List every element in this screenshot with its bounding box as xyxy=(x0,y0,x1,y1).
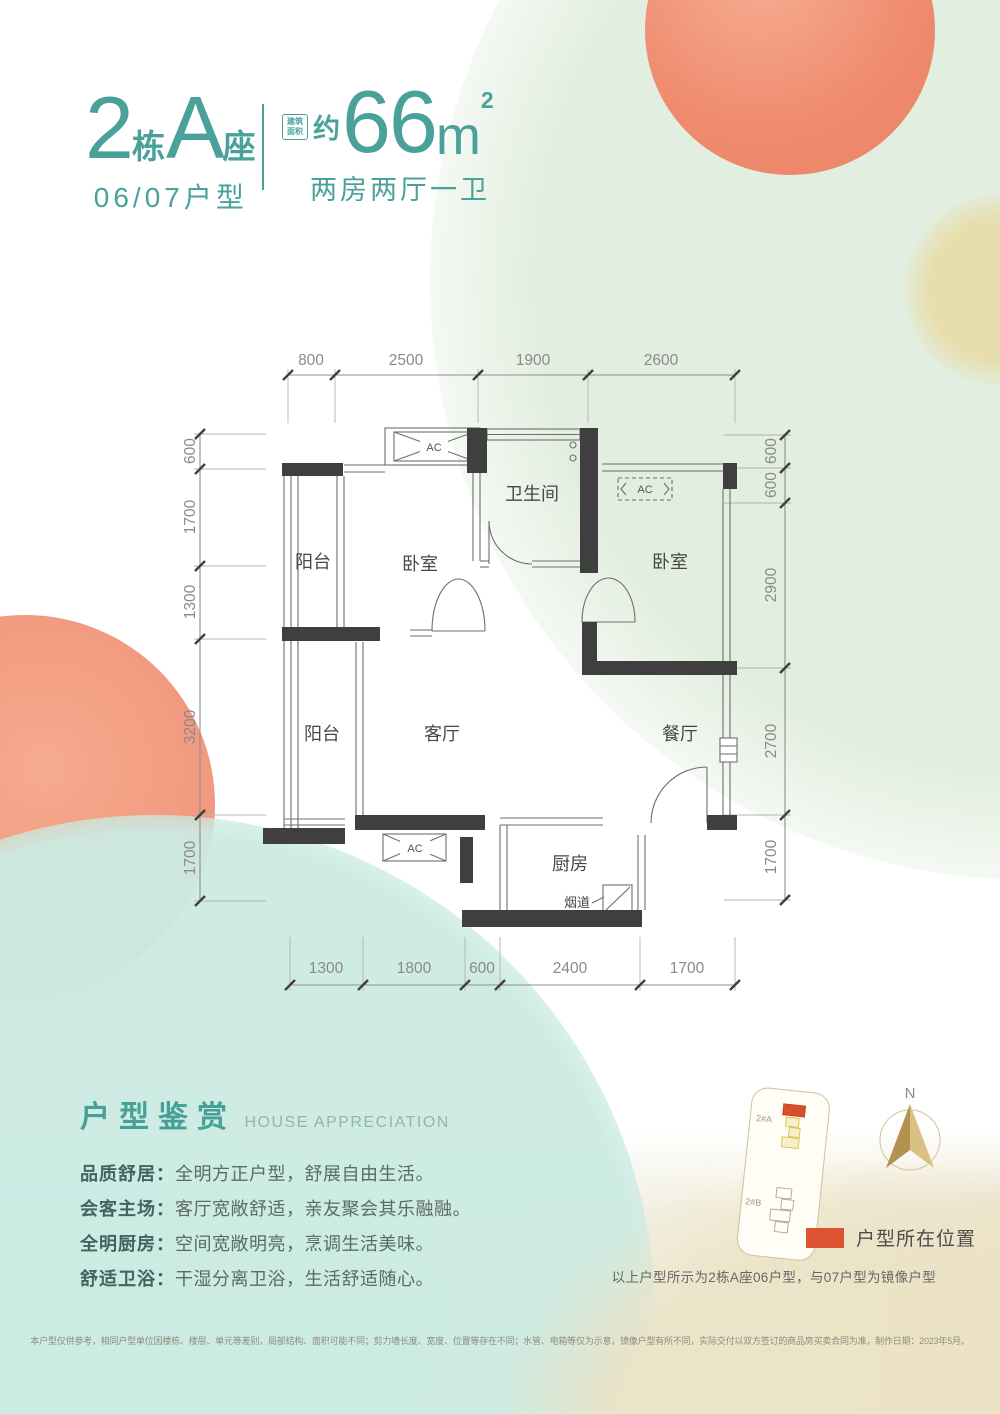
dim-bottom-5: 1700 xyxy=(670,960,705,977)
dim-bottom-4: 2400 xyxy=(553,960,588,977)
room-label-bedroom-left: 卧室 xyxy=(402,554,438,574)
dim-top-2: 2500 xyxy=(389,352,424,369)
dim-left-2: 1700 xyxy=(182,499,199,534)
dim-top-1: 800 xyxy=(298,352,324,369)
poster-page: 2栋A座 06/07户型 建筑面积 约 66 m 2 两房两厅一卫 xyxy=(0,0,1000,1414)
dim-right-3: 2900 xyxy=(763,567,780,602)
appreciation-point: 舒适卫浴：干湿分离卫浴，生活舒适随心。 xyxy=(80,1265,471,1300)
mirror-caption: 以上户型所示为2栋A座06户型，与07户型为镜像户型 xyxy=(500,1266,936,1286)
appreciation-title-cn: 户型鉴赏 xyxy=(80,1101,236,1134)
room-label-flue: 烟道 xyxy=(564,895,590,910)
appreciation-point: 全明厨房：空间宽敞明亮，烹调生活美味。 xyxy=(80,1230,471,1265)
legend-swatch-icon xyxy=(806,1228,844,1248)
dim-top-3: 1900 xyxy=(516,352,551,369)
room-label-balcony-mid: 阳台 xyxy=(304,724,340,744)
area-approx: 约 xyxy=(313,107,340,146)
dim-top-4: 2600 xyxy=(644,352,679,369)
dim-left-1: 600 xyxy=(182,438,199,464)
legend-label: 户型所在位置 xyxy=(856,1224,976,1251)
ac-label-top: AC xyxy=(426,442,441,454)
appreciation-title: 户型鉴赏 HOUSE APPRECIATION xyxy=(80,1092,450,1136)
dim-right-4: 2700 xyxy=(763,723,780,758)
area-title: 建筑面积 约 66 m 2 两房两厅一卫 xyxy=(282,86,494,207)
appreciation-points: 品质舒居：全明方正户型，舒展自由生活。 会客主场：客厅宽敞舒适，亲友聚会其乐融融… xyxy=(80,1160,471,1300)
floor-plan: 800 2500 1900 2600 600 1700 1300 3200 17… xyxy=(180,325,820,1005)
ac-label-bottom: AC xyxy=(407,843,422,855)
building-a-label: 2#A xyxy=(756,1113,773,1125)
dim-right-5: 1700 xyxy=(763,839,780,874)
block-letter: A xyxy=(166,78,223,177)
room-label-dining: 餐厅 xyxy=(662,724,698,744)
room-label-balcony-top: 阳台 xyxy=(295,552,331,572)
area-unit: m xyxy=(436,115,481,158)
dim-bottom-3: 600 xyxy=(469,960,495,977)
appreciation-point: 品质舒居：全明方正户型，舒展自由生活。 xyxy=(80,1160,471,1195)
building-number-suffix: 栋 xyxy=(132,128,166,165)
north-label: N xyxy=(905,1085,916,1102)
dim-left-5: 1700 xyxy=(182,840,199,875)
dim-bottom-2: 1800 xyxy=(397,960,432,977)
unit-types: 06/07户型 xyxy=(85,176,257,216)
appreciation-title-en: HOUSE APPRECIATION xyxy=(244,1114,449,1131)
dim-right-1: 600 xyxy=(763,438,780,464)
room-label-bedroom-right: 卧室 xyxy=(652,552,688,572)
disclaimer: 本户型仅供参考，相同户型单位因楼栋、楼层、单元等差别，局部结构、面积可能不同；剪… xyxy=(20,1334,980,1347)
room-label-bathroom: 卫生间 xyxy=(505,484,559,504)
area-value: 66 xyxy=(342,86,436,158)
building-b-label: 2#B xyxy=(745,1196,762,1208)
header-divider xyxy=(262,104,264,190)
block-letter-suffix: 座 xyxy=(223,128,257,165)
appreciation-point: 会客主场：客厅宽敞舒适，亲友聚会其乐融融。 xyxy=(80,1195,471,1230)
room-label-kitchen: 厨房 xyxy=(552,854,588,874)
ac-label-bedroom: AC xyxy=(637,484,652,496)
dim-left-3: 1300 xyxy=(182,584,199,619)
area-exponent: 2 xyxy=(481,87,494,114)
legend: 户型所在位置 xyxy=(806,1224,976,1251)
building-number: 2 xyxy=(85,78,132,177)
layout-description: 两房两厅一卫 xyxy=(310,168,494,207)
room-label-living: 客厅 xyxy=(424,724,460,744)
dim-left-4: 3200 xyxy=(182,709,199,744)
area-seal-icon: 建筑面积 xyxy=(282,114,308,140)
dim-right-2: 600 xyxy=(763,472,780,498)
north-compass-icon: N xyxy=(880,1085,940,1170)
dim-bottom-1: 1300 xyxy=(309,960,344,977)
building-title: 2栋A座 06/07户型 xyxy=(85,84,257,216)
